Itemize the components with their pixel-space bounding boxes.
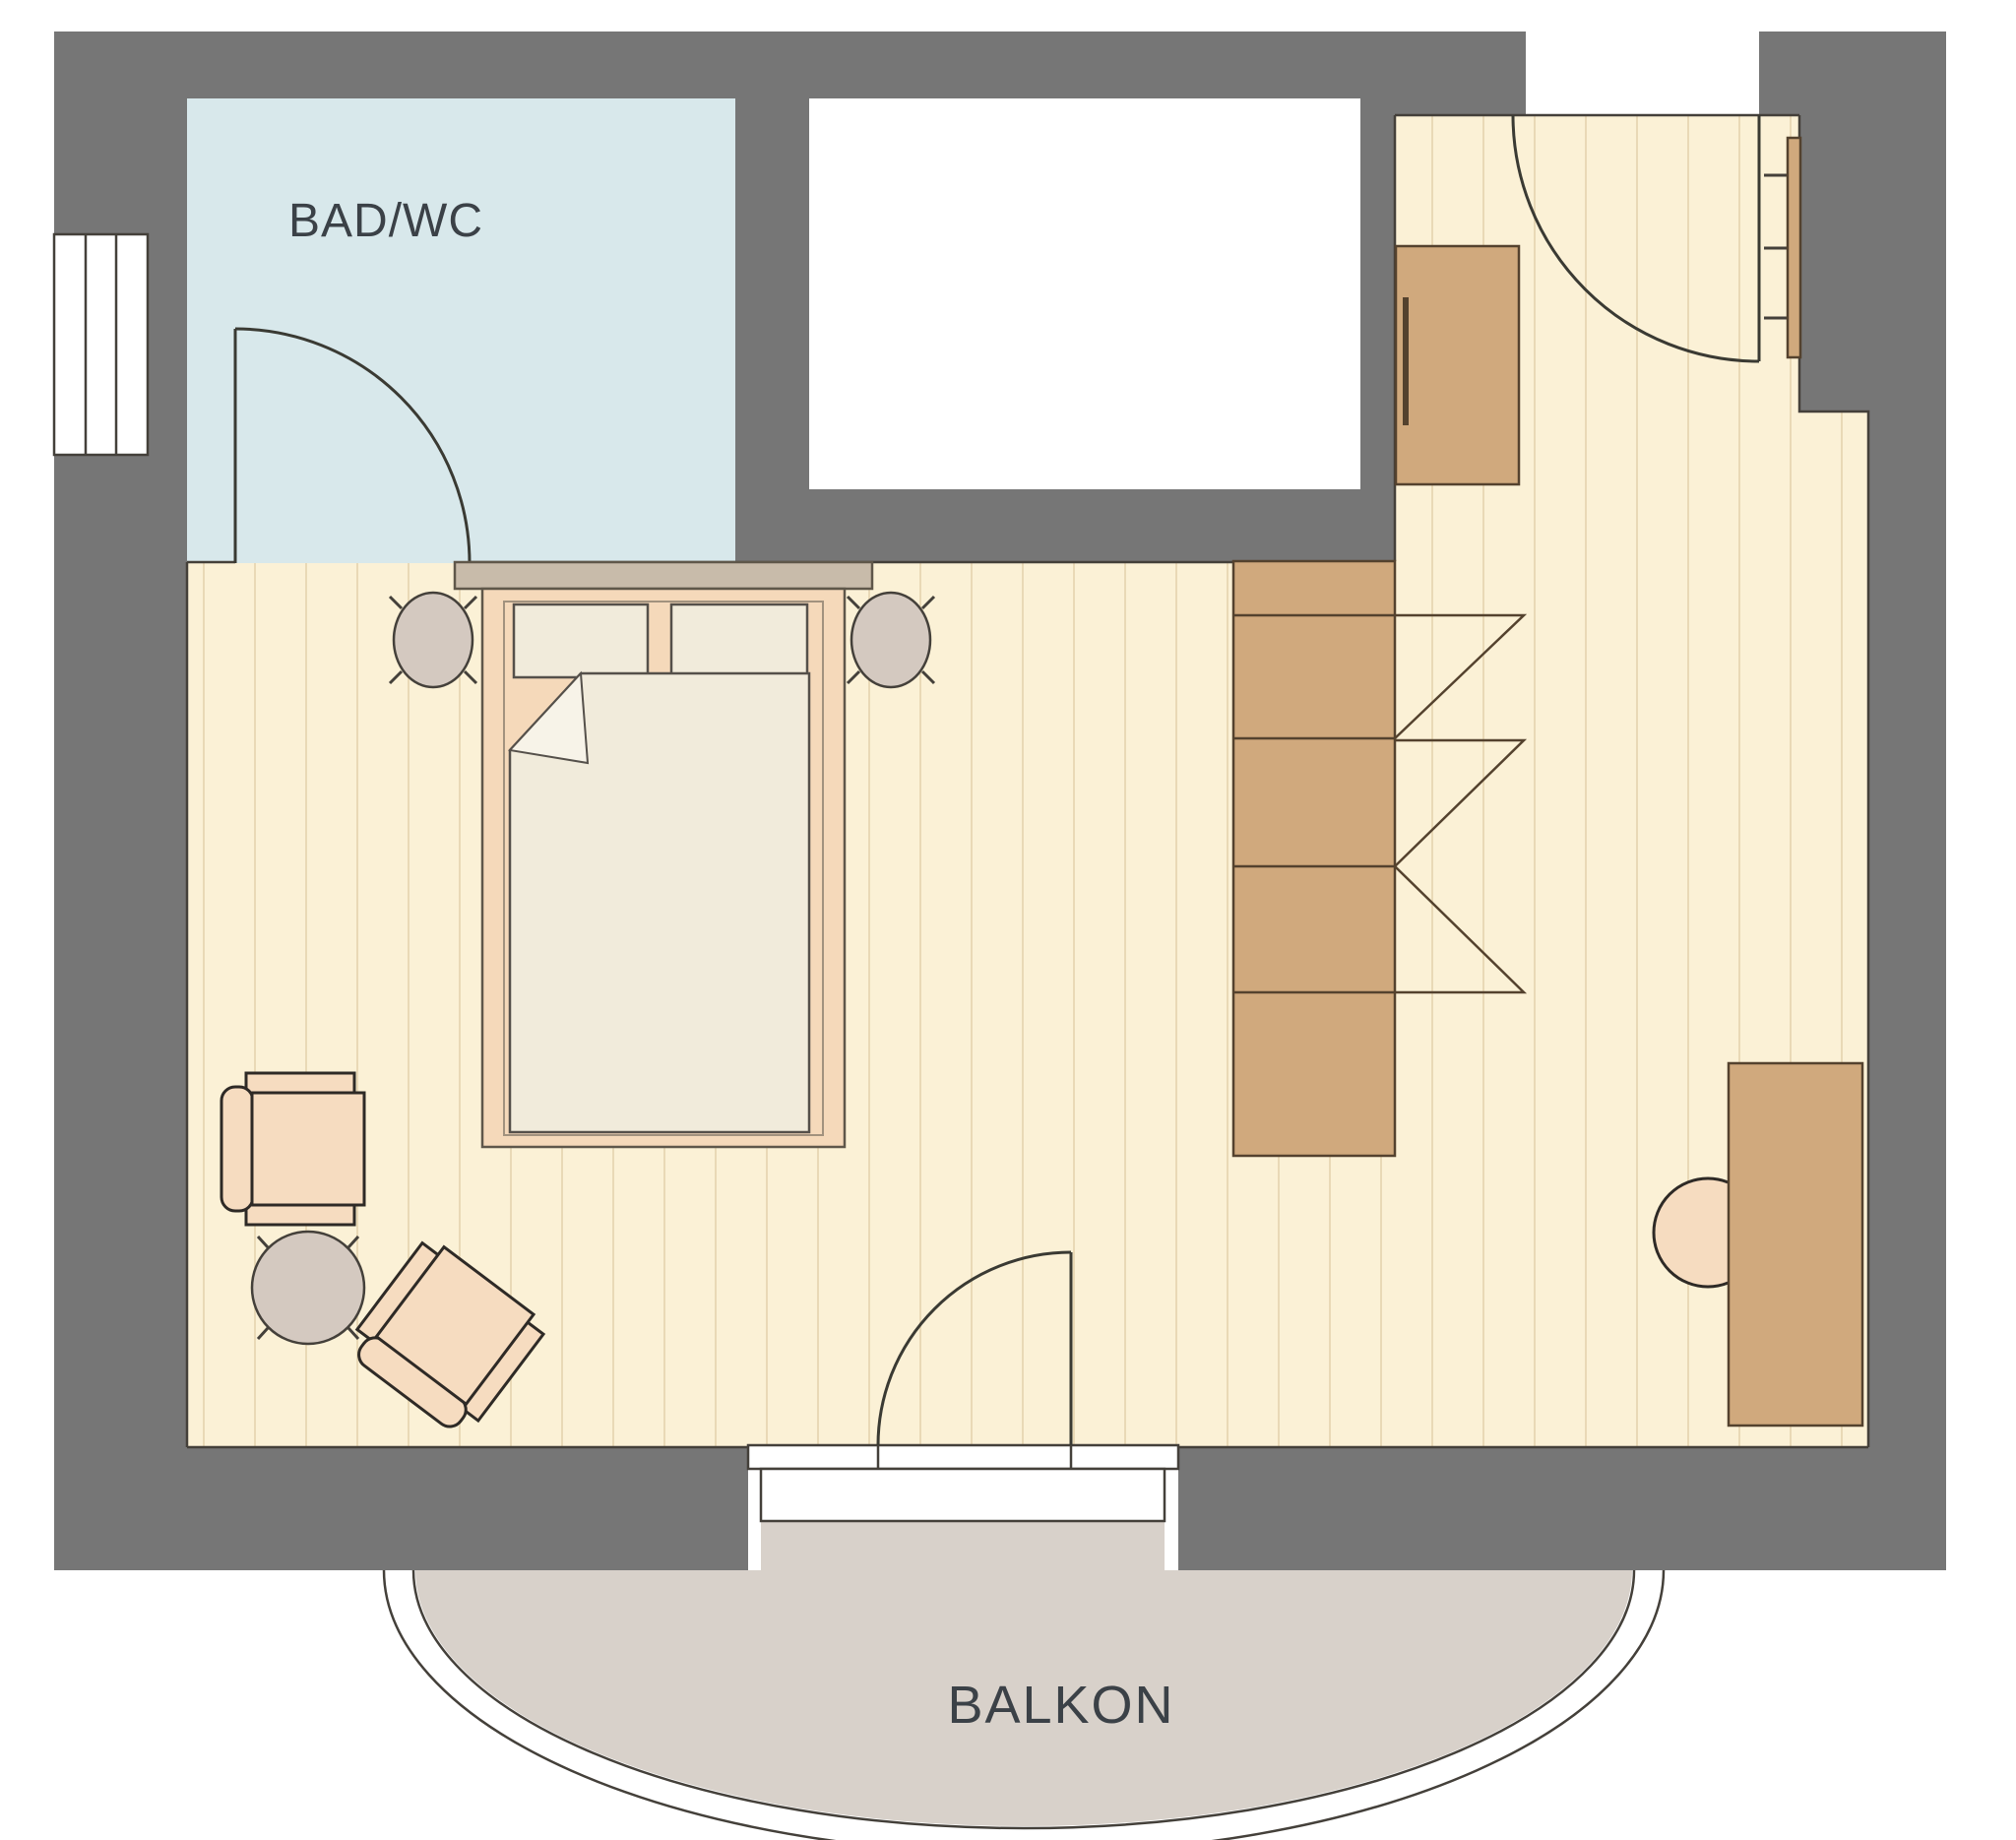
pillow-left (514, 604, 648, 677)
bathroom-label: BAD/WC (288, 195, 483, 247)
backrest (221, 1087, 253, 1211)
balcony-landing (761, 1521, 1165, 1574)
shelf-board (1788, 138, 1800, 357)
armchair-1 (221, 1073, 364, 1225)
cabinet-body (1396, 246, 1519, 484)
nightstand-top (394, 593, 472, 687)
wall-right-lower (1868, 412, 1946, 1449)
wall-bottom-left (54, 1447, 748, 1570)
wall-top-entry-right (1759, 32, 1946, 115)
entry-cabinet (1396, 246, 1519, 484)
seat (252, 1093, 364, 1205)
bed (455, 562, 872, 1147)
wall-bathroom-right (735, 98, 809, 563)
window-left (54, 234, 148, 455)
balcony-label: BALKON (947, 1676, 1174, 1735)
floor-plan: BAD/WC BALKON (0, 0, 2016, 1840)
balcony-threshold (748, 1445, 1178, 1469)
headboard (455, 562, 872, 589)
side-table (252, 1232, 364, 1344)
wall-below-void (809, 489, 1396, 561)
wall-top (54, 32, 1368, 98)
table-top (252, 1232, 364, 1344)
wall-void-right-strip (1360, 98, 1395, 561)
balcony-step (761, 1469, 1165, 1521)
window-glass (54, 234, 148, 455)
wall-bottom-right (1178, 1447, 1946, 1570)
wardrobe-body (1233, 561, 1395, 1156)
desk (1729, 1063, 1862, 1426)
nightstand-top (851, 593, 930, 687)
wall-right-upper (1799, 115, 1946, 412)
pillow-right (671, 604, 807, 677)
